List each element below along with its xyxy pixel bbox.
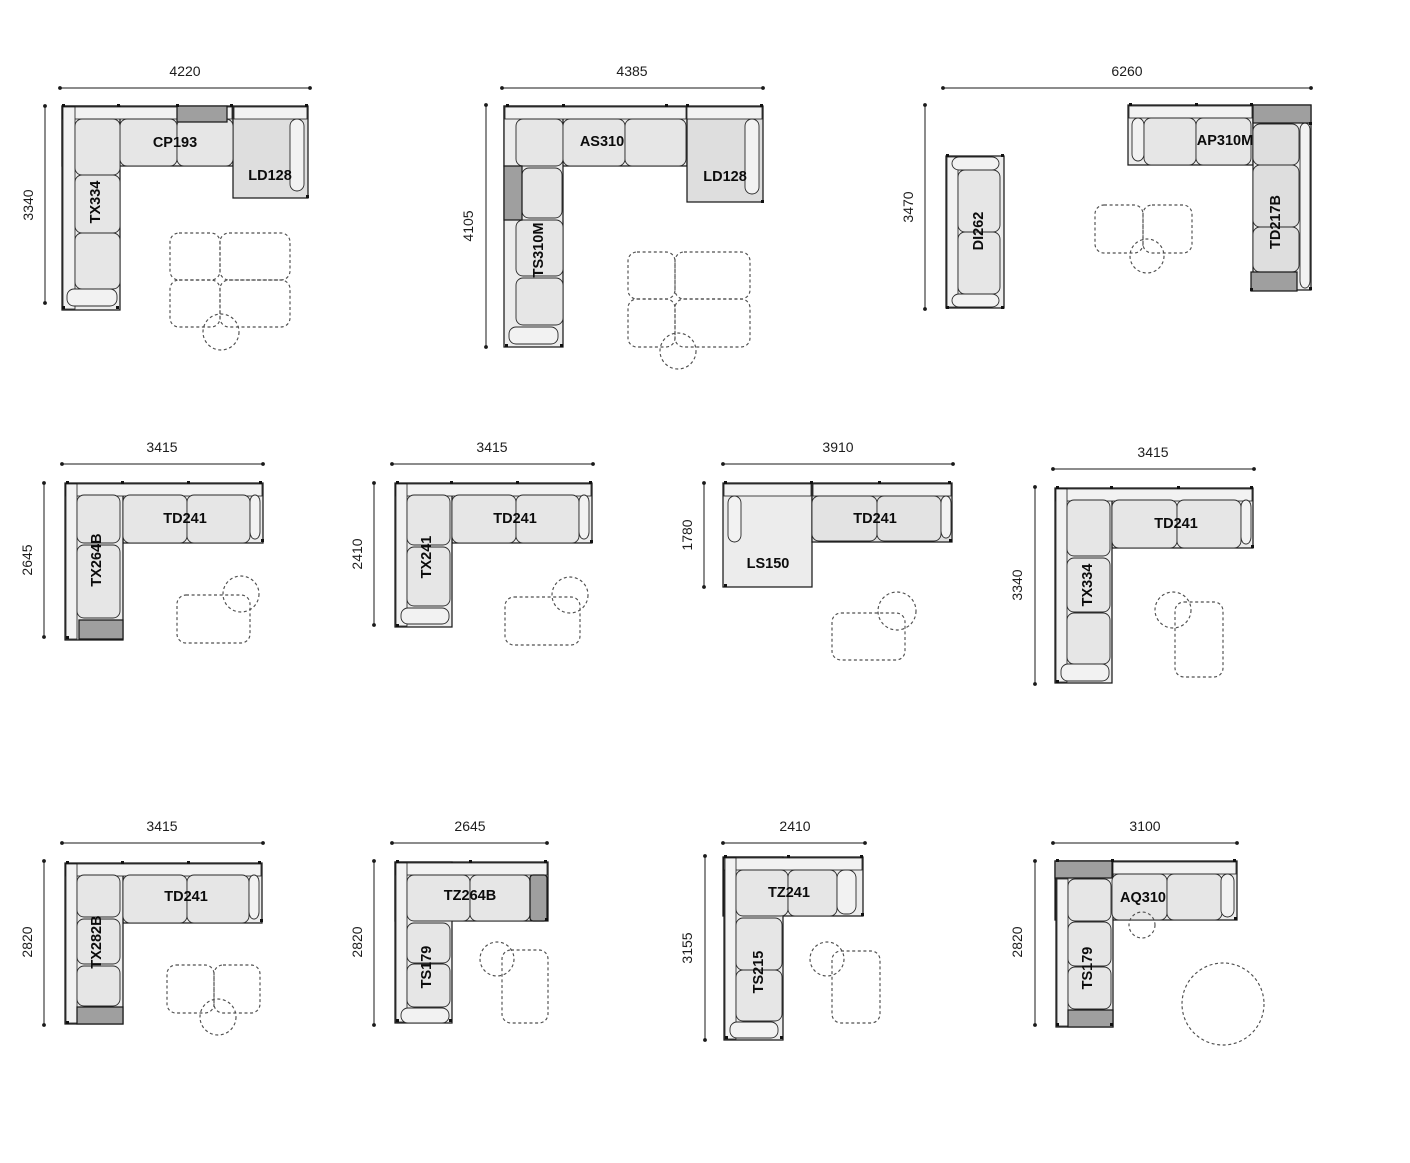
foot-dot	[260, 919, 263, 922]
dashed-table-outline	[1175, 602, 1223, 677]
seat-cushion	[522, 168, 562, 218]
dim-endpoint	[923, 307, 927, 311]
backrest-strip	[1113, 862, 1236, 874]
dim-endpoint	[42, 481, 46, 485]
depth-dimension: 2820	[19, 859, 46, 1027]
foot-dot	[305, 104, 308, 107]
backrest-strip	[234, 107, 307, 119]
piece-label-di262: DI262	[971, 212, 987, 251]
foot-dot	[724, 584, 727, 587]
foot-dot	[1110, 1023, 1113, 1026]
dim-endpoint	[60, 462, 64, 466]
width-dimension: 3415	[60, 439, 265, 466]
dim-endpoint	[1051, 841, 1055, 845]
seat-cushion	[1144, 118, 1196, 165]
foot-dot	[949, 539, 952, 542]
backrest-strip	[1056, 489, 1252, 501]
dim-endpoint	[1235, 841, 1239, 845]
seat-cushion	[1167, 874, 1222, 920]
armrest-cushion	[579, 495, 589, 539]
depth-dimension: 3340	[20, 104, 47, 305]
piece-label-ts179: TS179	[1080, 947, 1096, 990]
dim-endpoint	[60, 841, 64, 845]
width-dimension: 4385	[500, 63, 765, 90]
piece-label-ts215: TS215	[751, 951, 767, 994]
piece-label-ts179: TS179	[419, 946, 435, 989]
accent-block	[177, 106, 227, 122]
foot-dot	[725, 1036, 728, 1039]
dim-label: 4385	[616, 63, 647, 79]
dashed-circle-outline	[1130, 239, 1164, 273]
dim-label: 3910	[822, 439, 853, 455]
dim-endpoint	[261, 462, 265, 466]
armrest-cushion	[745, 119, 759, 194]
foot-dot	[506, 104, 509, 107]
dim-label: 2820	[1009, 926, 1025, 957]
foot-dot	[590, 540, 593, 543]
foot-dot	[760, 104, 763, 107]
dim-endpoint	[1033, 682, 1037, 686]
backrest-strip	[724, 484, 811, 496]
foot-dot	[1056, 486, 1059, 489]
piece-label-ts310m: TS310M	[531, 223, 547, 278]
dim-endpoint	[372, 623, 376, 627]
foot-dot	[117, 104, 120, 107]
dashed-table-outline	[177, 595, 250, 643]
dashed-table-outline	[832, 613, 905, 660]
dashed-table-outline	[675, 252, 750, 299]
dashed-table-outline	[1143, 205, 1192, 253]
dashed-table-outline	[220, 280, 290, 327]
foot-dot	[946, 306, 949, 309]
foot-dot	[62, 306, 65, 309]
dashed-table-outline	[675, 299, 750, 347]
piece-label-ld128: LD128	[703, 169, 747, 185]
seat-cushion	[77, 875, 120, 917]
armrest-cushion	[249, 875, 259, 919]
depth-dimension: 3155	[679, 854, 707, 1042]
dim-endpoint	[951, 462, 955, 466]
dim-endpoint	[58, 86, 62, 90]
dim-endpoint	[43, 301, 47, 305]
dim-endpoint	[702, 481, 706, 485]
dim-endpoint	[923, 103, 927, 107]
foot-dot	[450, 481, 453, 484]
depth-dimension: 2645	[19, 481, 46, 639]
accent-block	[1251, 272, 1297, 291]
foot-dot	[560, 344, 563, 347]
armrest-cushion	[952, 157, 999, 170]
dim-label: 3415	[146, 818, 177, 834]
foot-dot	[1001, 306, 1004, 309]
dim-label: 2645	[19, 544, 35, 575]
backrest-strip	[505, 107, 686, 119]
config-tz241-ts215: 24103155TZ241TS215	[679, 818, 880, 1042]
width-dimension: 6260	[941, 63, 1313, 90]
foot-dot	[686, 104, 689, 107]
seat-cushion	[625, 119, 686, 166]
backrest-strip	[66, 864, 261, 876]
foot-dot	[787, 855, 790, 858]
accent-block	[504, 166, 522, 220]
config-tx264b-td241: 34152645TD241TX264B	[19, 439, 265, 643]
foot-dot	[724, 855, 727, 858]
foot-dot	[396, 860, 399, 863]
foot-dot	[396, 1019, 399, 1022]
backrest-strip	[63, 107, 75, 309]
dim-endpoint	[42, 859, 46, 863]
foot-dot	[66, 861, 69, 864]
depth-dimension: 4105	[460, 103, 488, 349]
piece-label-cp193: CP193	[153, 135, 197, 151]
dim-endpoint	[500, 86, 504, 90]
config-tx334-td241: 34153340TD241TX334	[1009, 444, 1256, 686]
foot-dot	[66, 1021, 69, 1024]
dim-endpoint	[43, 104, 47, 108]
foot-dot	[1250, 103, 1253, 106]
accent-block	[79, 620, 123, 639]
dim-endpoint	[721, 841, 725, 845]
dim-label: 3415	[146, 439, 177, 455]
foot-dot	[258, 861, 261, 864]
seat-cushion	[1068, 879, 1111, 921]
foot-dot	[306, 195, 309, 198]
dim-endpoint	[1051, 467, 1055, 471]
backrest-strip	[724, 858, 862, 870]
dashed-circle-outline	[203, 314, 239, 350]
dim-label: 3415	[476, 439, 507, 455]
foot-dot	[176, 104, 179, 107]
dim-label: 1780	[679, 519, 695, 550]
dashed-circle-outline	[1182, 963, 1264, 1045]
armrest-cushion	[1241, 500, 1251, 544]
dim-endpoint	[703, 1038, 707, 1042]
armrest-cushion	[290, 119, 304, 191]
dashed-circle-outline	[552, 577, 588, 613]
piece-label-tz241: TZ241	[768, 885, 810, 901]
armrest-cushion	[1221, 874, 1234, 917]
accent-block	[1055, 861, 1112, 878]
backrest-strip	[66, 484, 262, 496]
foot-dot	[562, 104, 565, 107]
backrest-strip	[725, 858, 736, 1039]
backrest-strip	[687, 107, 762, 119]
foot-dot	[469, 860, 472, 863]
seat-cushion	[75, 119, 120, 175]
config-aq310-ts179: 31002820AQ310TS179	[1009, 818, 1264, 1045]
foot-dot	[861, 913, 864, 916]
foot-dot	[121, 861, 124, 864]
foot-dot	[1309, 287, 1312, 290]
accent-block	[1068, 1010, 1113, 1027]
dim-label: 2410	[349, 538, 365, 569]
piece-label-td241: TD241	[853, 511, 897, 527]
dim-endpoint	[703, 854, 707, 858]
foot-dot	[396, 624, 399, 627]
dashed-table-outline	[628, 299, 675, 347]
dashed-table-outline	[170, 233, 220, 280]
dim-label: 3470	[900, 191, 916, 222]
dim-endpoint	[761, 86, 765, 90]
depth-dimension: 2820	[349, 859, 376, 1027]
config-di262-ap310m-td217b: 62603470DI262AP310MTD217B	[900, 63, 1313, 311]
dim-endpoint	[42, 1023, 46, 1027]
foot-dot	[1309, 122, 1312, 125]
armrest-cushion	[952, 294, 999, 307]
width-dimension: 3910	[721, 439, 955, 466]
dim-label: 4105	[460, 210, 476, 241]
piece-label-td217b: TD217B	[1268, 195, 1284, 249]
foot-dot	[116, 306, 119, 309]
foot-dot	[589, 481, 592, 484]
foot-dot	[121, 481, 124, 484]
seat-cushion	[1067, 613, 1110, 664]
dashed-table-outline	[220, 233, 290, 280]
dashed-circle-outline	[660, 333, 696, 369]
dim-endpoint	[484, 103, 488, 107]
config-tx241-td241: 34152410TD241TX241	[349, 439, 595, 645]
dim-endpoint	[372, 859, 376, 863]
depth-dimension: 2410	[349, 481, 376, 627]
foot-dot	[948, 481, 951, 484]
dim-label: 3340	[20, 189, 36, 220]
foot-dot	[1234, 917, 1237, 920]
dim-endpoint	[863, 841, 867, 845]
foot-dot	[62, 104, 65, 107]
foot-dot	[724, 481, 727, 484]
foot-dot	[187, 861, 190, 864]
piece-label-ap310m: AP310M	[1197, 133, 1253, 149]
dashed-table-outline	[170, 280, 220, 327]
armrest-cushion	[67, 289, 117, 306]
foot-dot	[1233, 859, 1236, 862]
config-tx282b-td241: 34152820TD241TX282B	[19, 818, 265, 1035]
armrest-cushion	[728, 496, 741, 542]
dim-endpoint	[308, 86, 312, 90]
foot-dot	[860, 855, 863, 858]
foot-dot	[544, 860, 547, 863]
depth-dimension: 3340	[1009, 485, 1037, 686]
foot-dot	[1251, 545, 1254, 548]
foot-dot	[516, 481, 519, 484]
armrest-cushion	[250, 495, 260, 539]
piece-label-as310: AS310	[580, 134, 624, 150]
width-dimension: 4220	[58, 63, 312, 90]
accent-block	[77, 1007, 123, 1024]
dim-label: 3155	[679, 932, 695, 963]
foot-dot	[1110, 486, 1113, 489]
seat-cushion	[77, 966, 120, 1006]
config-as310-ts310m-ld128: 43854105AS310LD128TS310M	[460, 63, 765, 369]
seat-cushion	[1253, 124, 1299, 165]
dim-endpoint	[261, 841, 265, 845]
accent-block	[530, 875, 547, 921]
dim-label: 2410	[779, 818, 810, 834]
dim-label: 6260	[1111, 63, 1142, 79]
backrest-strip	[1057, 879, 1068, 1026]
dim-endpoint	[591, 462, 595, 466]
dim-endpoint	[1033, 485, 1037, 489]
foot-dot	[449, 1019, 452, 1022]
dim-label: 2820	[19, 926, 35, 957]
dim-endpoint	[702, 585, 706, 589]
foot-dot	[1129, 103, 1132, 106]
dim-endpoint	[372, 481, 376, 485]
dim-endpoint	[721, 462, 725, 466]
dashed-table-outline	[505, 597, 580, 645]
dim-endpoint	[545, 841, 549, 845]
backrest-strip	[396, 863, 407, 1022]
seat-cushion	[516, 278, 563, 325]
backrest-strip	[947, 157, 958, 307]
config-tx334-cp193-ld128: 42203340CP193LD128TX334	[20, 63, 312, 350]
piece-label-tz264b: TZ264B	[444, 888, 496, 904]
depth-dimension: 1780	[679, 481, 706, 589]
piece-label-tx264b: TX264B	[89, 533, 105, 586]
armrest-cushion	[730, 1022, 778, 1038]
backrest-strip	[1056, 489, 1067, 682]
armrest-cushion	[941, 496, 951, 538]
piece-label-ls150: LS150	[747, 556, 790, 572]
piece-label-td241: TD241	[1154, 516, 1198, 532]
foot-dot	[66, 481, 69, 484]
config-tz264b-ts179: 26452820TZ264BTS179	[349, 818, 549, 1027]
dim-endpoint	[390, 462, 394, 466]
foot-dot	[230, 104, 233, 107]
foot-dot	[1195, 103, 1198, 106]
dashed-circle-outline	[200, 999, 236, 1035]
piece-label-tx241: TX241	[419, 536, 435, 579]
foot-dot	[1056, 1023, 1059, 1026]
armrest-cushion	[1132, 118, 1144, 161]
backrest-strip	[396, 484, 591, 496]
piece-label-ld128: LD128	[248, 168, 292, 184]
foot-dot	[1250, 486, 1253, 489]
dim-endpoint	[1033, 1023, 1037, 1027]
piece-label-td241: TD241	[163, 511, 207, 527]
config-ls150-td241: 39101780TD241LS150	[679, 439, 955, 660]
foot-dot	[1250, 288, 1253, 291]
foot-dot	[66, 636, 69, 639]
dim-endpoint	[372, 1023, 376, 1027]
dim-endpoint	[1309, 86, 1313, 90]
dashed-circle-outline	[1155, 592, 1191, 628]
foot-dot	[1111, 859, 1114, 862]
backrest-strip	[396, 863, 547, 875]
dim-label: 3100	[1129, 818, 1160, 834]
width-dimension: 3415	[1051, 444, 1256, 471]
piece-label-tx334: TX334	[88, 181, 104, 224]
foot-dot	[545, 918, 548, 921]
armrest-cushion	[401, 608, 449, 624]
dashed-table-outline	[628, 252, 675, 299]
backrest-strip	[66, 864, 77, 1023]
foot-dot	[261, 539, 264, 542]
width-dimension: 3100	[1051, 818, 1239, 845]
width-dimension: 2645	[390, 818, 549, 845]
backrest-strip	[1129, 106, 1252, 118]
armrest-cushion	[1061, 664, 1109, 681]
foot-dot	[665, 104, 668, 107]
foot-dot	[505, 344, 508, 347]
dashed-circle-outline	[878, 592, 916, 630]
sofa-configurations-page: 42203340CP193LD128TX33443854105AS310LD12…	[0, 0, 1410, 1163]
dim-endpoint	[1033, 859, 1037, 863]
armrest-cushion	[509, 327, 558, 344]
dashed-table-outline	[214, 965, 260, 1013]
foot-dot	[780, 1036, 783, 1039]
dim-label: 2645	[454, 818, 485, 834]
dashed-table-outline	[1095, 205, 1143, 253]
foot-dot	[187, 481, 190, 484]
foot-dot	[1056, 859, 1059, 862]
foot-dot	[946, 154, 949, 157]
piece-label-td241: TD241	[493, 511, 537, 527]
armrest-cushion	[837, 870, 856, 914]
dashed-table-outline	[502, 950, 548, 1023]
dashed-table-outline	[832, 951, 880, 1023]
dim-endpoint	[42, 635, 46, 639]
foot-dot	[396, 481, 399, 484]
dashed-circle-outline	[480, 942, 514, 976]
foot-dot	[1056, 680, 1059, 683]
dim-label: 2820	[349, 926, 365, 957]
foot-dot	[1177, 486, 1180, 489]
backrest-strip	[66, 484, 77, 639]
foot-dot	[259, 481, 262, 484]
dashed-table-outline	[167, 965, 214, 1013]
dim-endpoint	[484, 345, 488, 349]
width-dimension: 3415	[60, 818, 265, 845]
depth-dimension: 2820	[1009, 859, 1037, 1027]
floorplan-svg: 42203340CP193LD128TX33443854105AS310LD12…	[0, 0, 1410, 1163]
depth-dimension: 3470	[900, 103, 927, 311]
seat-cushion	[75, 233, 120, 289]
backrest-strip	[813, 484, 951, 496]
dim-endpoint	[1252, 467, 1256, 471]
armrest-cushion	[401, 1008, 449, 1023]
seat-cushion	[516, 119, 563, 166]
piece-label-td241: TD241	[164, 889, 208, 905]
seat-cushion	[1067, 500, 1110, 556]
width-dimension: 2410	[721, 818, 867, 845]
piece-label-tx282b: TX282B	[89, 915, 105, 968]
dim-label: 3415	[1137, 444, 1168, 460]
foot-dot	[1001, 154, 1004, 157]
foot-dot	[761, 200, 764, 203]
piece-label-tx334: TX334	[1080, 564, 1096, 607]
piece-label-aq310: AQ310	[1120, 890, 1166, 906]
dim-label: 3340	[1009, 569, 1025, 600]
foot-dot	[878, 481, 881, 484]
dim-endpoint	[390, 841, 394, 845]
dim-endpoint	[941, 86, 945, 90]
backrest-strip	[396, 484, 407, 626]
accent-block	[1253, 105, 1311, 123]
dim-label: 4220	[169, 63, 200, 79]
dashed-circle-outline	[223, 576, 259, 612]
backrest-strip	[1300, 123, 1310, 288]
dashed-circle-outline	[810, 942, 844, 976]
width-dimension: 3415	[390, 439, 595, 466]
foot-dot	[810, 481, 813, 484]
